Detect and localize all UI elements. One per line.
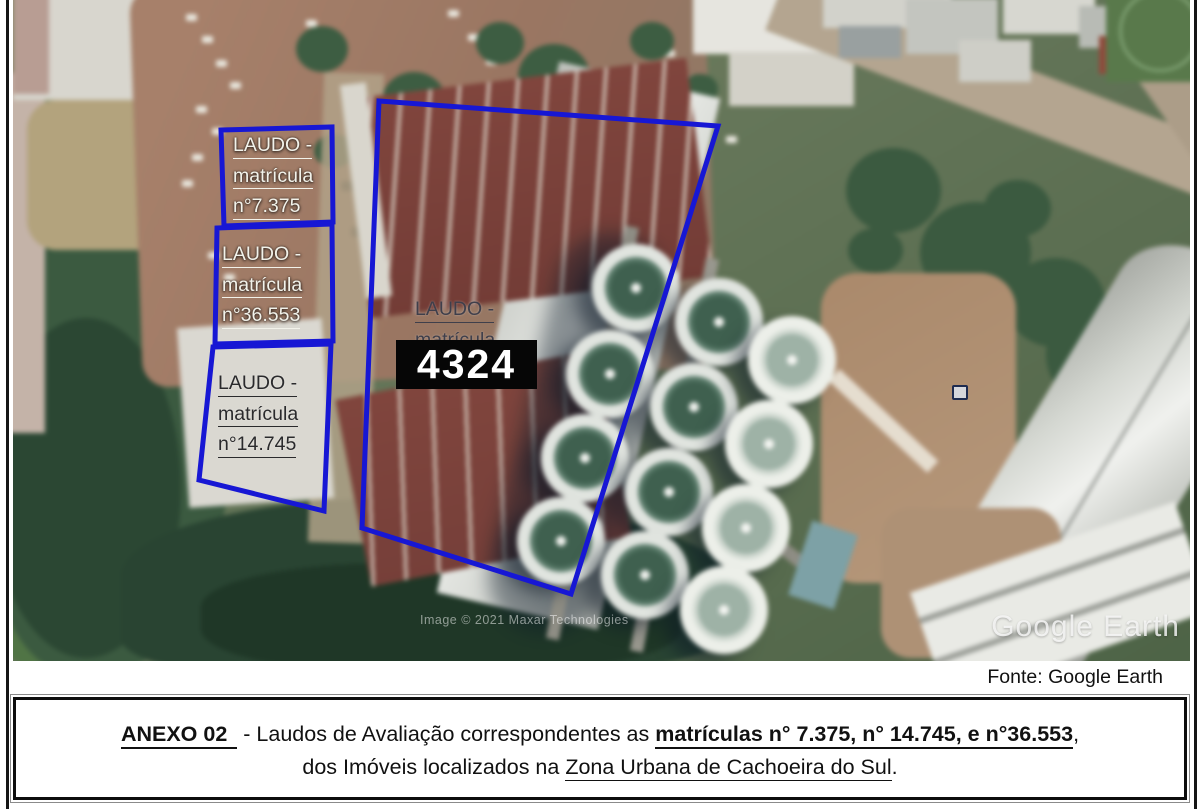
label-line: n°14.745	[218, 435, 296, 458]
parcel-label-14745: LAUDO - matrícula n°14.745	[218, 374, 298, 466]
label-line: LAUDO -	[233, 136, 312, 159]
silo-tank	[592, 244, 680, 332]
annex-dash: -	[237, 722, 256, 746]
plot-number-badge: 4324	[396, 340, 537, 389]
label-line: LAUDO -	[415, 300, 494, 323]
silo-tank	[702, 484, 790, 572]
trees	[846, 148, 941, 233]
annex-body: Laudos de Avaliação correspondentes as	[256, 722, 655, 746]
imagery-credit: Image © 2021 Maxar Technologies	[420, 613, 629, 627]
silo-tank	[566, 330, 654, 418]
silo-tank	[725, 400, 813, 488]
trees	[296, 26, 348, 72]
label-line: n°36.553	[222, 306, 300, 329]
annex-heading: ANEXO 02	[121, 722, 237, 749]
silo-tank	[680, 566, 768, 654]
label-line: matrícula	[233, 167, 313, 190]
annex-line-2: dos Imóveis localizados na Zona Urbana d…	[16, 751, 1184, 784]
document-page: LAUDO - matrícula n°7.375 LAUDO - matríc…	[0, 0, 1200, 809]
google-earth-logo: Google Earth	[991, 610, 1180, 644]
buildings	[13, 0, 49, 94]
parcel-label-7375: LAUDO - matrícula n°7.375	[233, 136, 313, 228]
buildings	[959, 40, 1031, 82]
parked-cars	[186, 14, 197, 21]
annex-matriculas: matrículas n° 7.375, n° 14.745, e n°36.5…	[655, 722, 1073, 749]
annex-line-1: ANEXO 02 - Laudos de Avaliação correspon…	[16, 718, 1184, 751]
label-line: LAUDO -	[218, 374, 297, 397]
source-caption: Fonte: Google Earth	[987, 666, 1163, 689]
silo-tank	[601, 531, 689, 619]
white-roof-building	[729, 52, 854, 106]
annex-period: .	[892, 755, 898, 779]
parcel-label-36553: LAUDO - matrícula n°36.553	[222, 245, 302, 337]
annex-zona-urbana: Zona Urbana de Cachoeira do Sul	[565, 755, 891, 781]
map-marker-icon	[952, 385, 968, 400]
buildings	[839, 26, 901, 58]
annex-note-box: ANEXO 02 - Laudos de Avaliação correspon…	[13, 697, 1187, 800]
label-line: matrícula	[218, 405, 298, 428]
label-line: n°7.375	[233, 197, 300, 220]
silo-tank	[625, 448, 713, 536]
annex-line2-text: dos Imóveis localizados na	[302, 755, 565, 779]
satellite-terrain	[13, 0, 1190, 661]
satellite-image: LAUDO - matrícula n°7.375 LAUDO - matríc…	[13, 0, 1190, 661]
silo-tank	[541, 414, 629, 502]
label-line: LAUDO -	[222, 245, 301, 268]
label-line: matrícula	[222, 276, 302, 299]
annex-comma: ,	[1073, 722, 1079, 746]
silo-tank	[517, 497, 605, 585]
silo-tank	[748, 316, 836, 404]
